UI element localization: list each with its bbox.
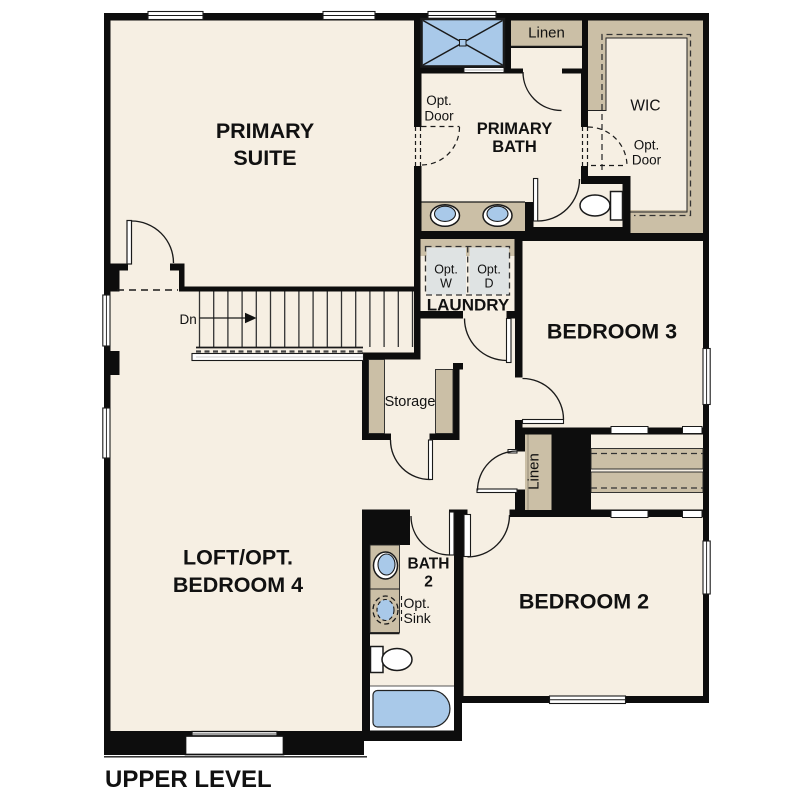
svg-text:Dn: Dn <box>180 312 197 327</box>
svg-text:BEDROOM 4: BEDROOM 4 <box>173 573 303 597</box>
svg-text:LAUNDRY: LAUNDRY <box>427 296 510 315</box>
svg-text:Opt.: Opt. <box>404 595 430 611</box>
svg-text:Storage: Storage <box>385 394 436 410</box>
svg-text:LOFT/OPT.: LOFT/OPT. <box>183 546 293 570</box>
svg-text:Door: Door <box>424 109 454 124</box>
svg-text:Opt.: Opt. <box>634 138 660 153</box>
svg-text:BATH: BATH <box>492 138 537 156</box>
svg-text:PRIMARY: PRIMARY <box>216 119 314 143</box>
svg-text:Door: Door <box>632 153 662 168</box>
svg-text:Sink: Sink <box>404 610 432 626</box>
svg-text:2: 2 <box>424 574 433 591</box>
svg-text:D: D <box>484 277 493 291</box>
svg-text:WIC: WIC <box>630 98 660 115</box>
svg-text:Linen: Linen <box>526 453 543 490</box>
svg-text:BATH: BATH <box>408 556 450 573</box>
svg-text:PRIMARY: PRIMARY <box>477 120 552 138</box>
svg-text:W: W <box>440 277 452 291</box>
svg-text:BEDROOM 3: BEDROOM 3 <box>547 320 677 344</box>
svg-text:SUITE: SUITE <box>233 146 296 170</box>
svg-text:BEDROOM 2: BEDROOM 2 <box>519 590 649 614</box>
svg-text:UPPER LEVEL: UPPER LEVEL <box>105 766 272 793</box>
svg-text:Opt.: Opt. <box>434 263 458 277</box>
svg-text:Opt.: Opt. <box>426 93 452 108</box>
svg-text:Linen: Linen <box>528 25 565 42</box>
svg-text:Opt.: Opt. <box>477 263 501 277</box>
